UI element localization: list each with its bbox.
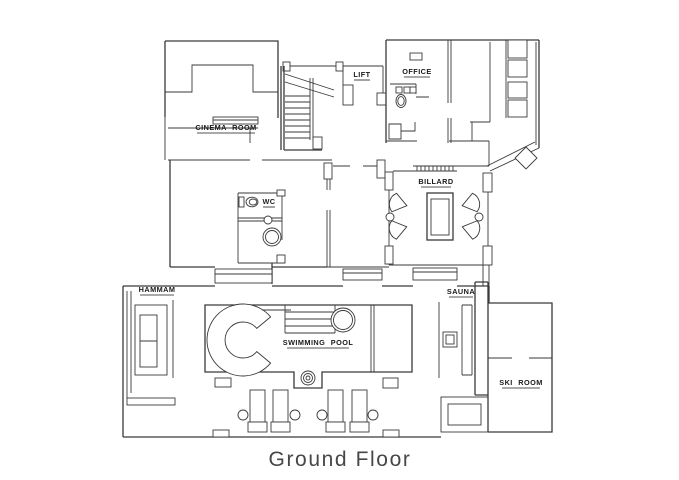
closet-shelf	[508, 60, 527, 77]
sauna-label: SAUNA	[447, 287, 475, 296]
lounge-chair-base	[326, 422, 345, 432]
billiard-label: BILLARD	[418, 177, 453, 186]
billiard-threshold	[413, 166, 457, 171]
office-cabinet	[410, 53, 422, 60]
curved-pool-wall	[207, 304, 271, 376]
hammam: HAMMAM	[131, 285, 175, 393]
floor-tab	[383, 378, 398, 388]
billiard-pillar	[385, 172, 393, 190]
billiard-room: BILLARD	[385, 166, 492, 286]
office-bottom-walls	[386, 122, 490, 166]
lift: LIFT	[343, 66, 386, 105]
wall-tab	[213, 430, 229, 437]
cinema-room: CINEMA ROOM	[165, 41, 278, 160]
pool-hall-outer-wall	[123, 286, 489, 437]
sauna-bench	[462, 305, 472, 375]
lift-pillar	[377, 93, 386, 105]
lift-label: LIFT	[353, 70, 370, 79]
fan-chair	[387, 192, 409, 215]
toilet-icon	[396, 87, 416, 108]
ski-room: SKI ROOM	[441, 303, 552, 432]
swimming-pool-label: SWIMMING POOL	[283, 338, 354, 347]
sauna-right-wall	[475, 282, 488, 395]
side-table	[317, 410, 327, 420]
sink-icon	[264, 216, 272, 224]
wall-tab	[383, 430, 399, 437]
lounge-chair-base	[248, 422, 267, 432]
floor-plan-canvas: CINEMA ROOM LIFT	[0, 0, 679, 480]
jacuzzi	[331, 308, 355, 332]
threshold-ticks	[417, 166, 453, 171]
side-table	[238, 410, 248, 420]
hall	[324, 160, 389, 280]
side-table	[290, 410, 300, 420]
pool-hall-walls	[123, 286, 489, 437]
hall-walls	[327, 163, 389, 267]
lounge-chair	[250, 390, 265, 422]
swimming-pool: SWIMMING POOL	[205, 304, 412, 388]
hall-pillar	[377, 160, 385, 178]
stair-pillar	[313, 137, 322, 149]
door-step	[413, 268, 457, 280]
wc-pillar	[277, 255, 285, 263]
sauna: SAUNA	[439, 282, 488, 395]
cinema-room-label: CINEMA ROOM	[195, 123, 256, 132]
cinema-inner-wall	[165, 65, 278, 92]
wall-pillar	[336, 62, 343, 71]
office-block: OFFICE	[386, 40, 539, 171]
floor-tab	[215, 378, 231, 387]
billiard-pillar	[483, 246, 492, 265]
pool-deck-wall	[371, 305, 374, 372]
fan-chair	[460, 192, 482, 215]
wall-ledge	[127, 398, 175, 405]
spiral-drain	[301, 371, 315, 385]
ski-room-label: SKI ROOM	[499, 378, 543, 387]
middle-section-walls	[168, 160, 332, 284]
entry-steps-inner	[448, 404, 481, 425]
office-lower-walls	[389, 122, 415, 139]
ski-room-walls	[488, 303, 552, 432]
lounge-chair-base	[271, 422, 290, 432]
stair-treads	[285, 96, 310, 138]
lounge-chair-base	[350, 422, 369, 432]
closet-wall	[490, 40, 506, 122]
stair-handrail	[310, 78, 313, 140]
office-label: OFFICE	[402, 67, 431, 76]
lounge-chair	[352, 390, 367, 422]
side-table	[368, 410, 378, 420]
door-step	[215, 269, 272, 283]
wc-pillar	[277, 190, 285, 196]
door-step	[343, 269, 382, 280]
lounge-chair	[273, 390, 288, 422]
stair-winders	[285, 74, 334, 97]
staircase	[281, 62, 343, 150]
wc-label: WC	[262, 197, 275, 206]
middle-left-wall	[170, 160, 327, 284]
lounge-area	[238, 390, 378, 432]
floor-plan-drawing: CINEMA ROOM LIFT	[0, 0, 679, 480]
billiard-pillar	[385, 246, 393, 264]
cinema-outer-wall	[165, 41, 278, 118]
page-title: Ground Floor	[269, 448, 412, 471]
billiard-pillar	[483, 173, 492, 192]
lounge-chair	[328, 390, 343, 422]
hall-pillar	[324, 163, 332, 179]
closet-shelf	[508, 82, 527, 98]
closet-shelf	[508, 100, 527, 117]
closet-shelf	[508, 40, 527, 58]
sauna-stove	[443, 332, 457, 347]
wc-room: WC	[238, 190, 285, 263]
side-table	[475, 213, 483, 221]
lift-pillar	[343, 85, 353, 105]
hammam-label: HAMMAM	[139, 285, 176, 294]
office-divider-wall	[448, 40, 451, 143]
side-table	[386, 213, 394, 221]
toilet-icon	[239, 197, 258, 207]
pool-steps	[285, 305, 335, 333]
